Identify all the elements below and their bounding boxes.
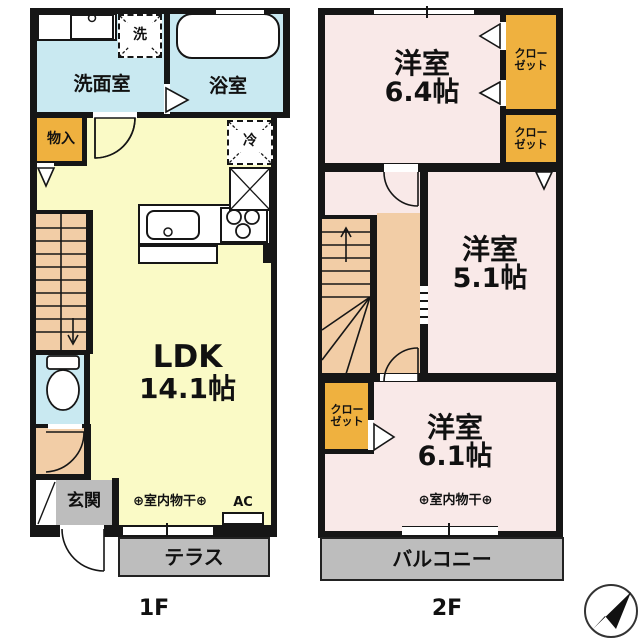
terrace-label: テラス	[130, 544, 258, 570]
kitchen-stove	[220, 207, 268, 243]
equipment-box	[229, 167, 271, 211]
window-balcony	[402, 526, 498, 536]
closet3-label: クロー ゼット	[325, 392, 369, 440]
room1-label: 洋室 6.4帖	[350, 40, 494, 116]
room3-size: 6.1帖	[418, 443, 493, 471]
ldk-name: LDK	[153, 341, 223, 374]
floor2-label: 2F	[417, 596, 477, 622]
window-floor2-top	[374, 9, 474, 15]
storage-label: 物入	[39, 128, 83, 150]
fridge-label: 冷	[236, 130, 264, 152]
door-gap	[380, 374, 418, 381]
floor-plan-canvas: 洗面室 浴室 洗 物入 冷 LDK 14.1帖 玄関 ⊕室内物干⊕ AC テラス…	[0, 0, 640, 640]
room1-size: 6.4帖	[385, 79, 460, 107]
door-gap	[48, 424, 82, 429]
vanity-sink	[70, 14, 114, 40]
ac-outlet-box	[222, 512, 264, 525]
stairs-1f	[36, 210, 93, 354]
sliding-door-hatch	[420, 284, 428, 326]
closet2-line2: ゼット	[515, 139, 548, 151]
drying-label-2f: ⊕室内物干⊕	[388, 492, 523, 510]
room2-size: 5.1帖	[453, 265, 528, 293]
room3-label: 洋室 6.1帖	[380, 402, 530, 482]
closet1-line2: ゼット	[515, 60, 548, 72]
wall	[420, 172, 428, 373]
wall	[318, 163, 563, 172]
room-toilet	[36, 350, 90, 428]
compass-icon	[585, 585, 637, 637]
floor1-label: 1F	[124, 596, 184, 622]
window-tick	[426, 6, 428, 18]
balcony-label: バルコニー	[376, 546, 508, 572]
entrance-step	[36, 480, 56, 525]
window-tick	[166, 523, 168, 538]
door-gap	[164, 84, 170, 114]
entrance-door-gap	[60, 525, 104, 537]
bathtub	[176, 13, 280, 59]
drying-label-1f: ⊕室内物干⊕	[103, 493, 237, 511]
closet3-line2: ゼット	[331, 416, 364, 428]
ldk-label: LDK 14.1帖	[110, 326, 265, 418]
room1-name: 洋室	[394, 49, 450, 78]
ac-label: AC	[222, 495, 264, 510]
door-gap	[37, 163, 54, 168]
kitchen-counter-return	[138, 245, 218, 264]
wall	[84, 424, 91, 480]
stairs-2f	[322, 215, 377, 378]
window-tick	[448, 523, 450, 538]
wall	[263, 245, 277, 263]
washroom-label: 洗面室	[48, 72, 156, 98]
room2-label: 洋室 5.1帖	[428, 226, 552, 302]
window-terrace	[123, 526, 213, 536]
window-bathroom-top	[216, 9, 264, 15]
bathroom-label: 浴室	[182, 74, 274, 100]
room3-name: 洋室	[427, 413, 483, 442]
washer-label: 洗	[126, 23, 154, 47]
closet1-label: クロー ゼット	[506, 38, 556, 82]
hall-2f	[377, 213, 420, 373]
room2-name: 洋室	[462, 235, 518, 264]
door-gap	[93, 112, 137, 118]
door-gap	[384, 164, 418, 172]
closet2-label: クロー ゼット	[506, 117, 556, 161]
closet-door-gap	[500, 80, 506, 106]
hall-1f	[36, 428, 84, 478]
ldk-size: 14.1帖	[139, 374, 236, 403]
kitchen-sink	[146, 210, 200, 240]
